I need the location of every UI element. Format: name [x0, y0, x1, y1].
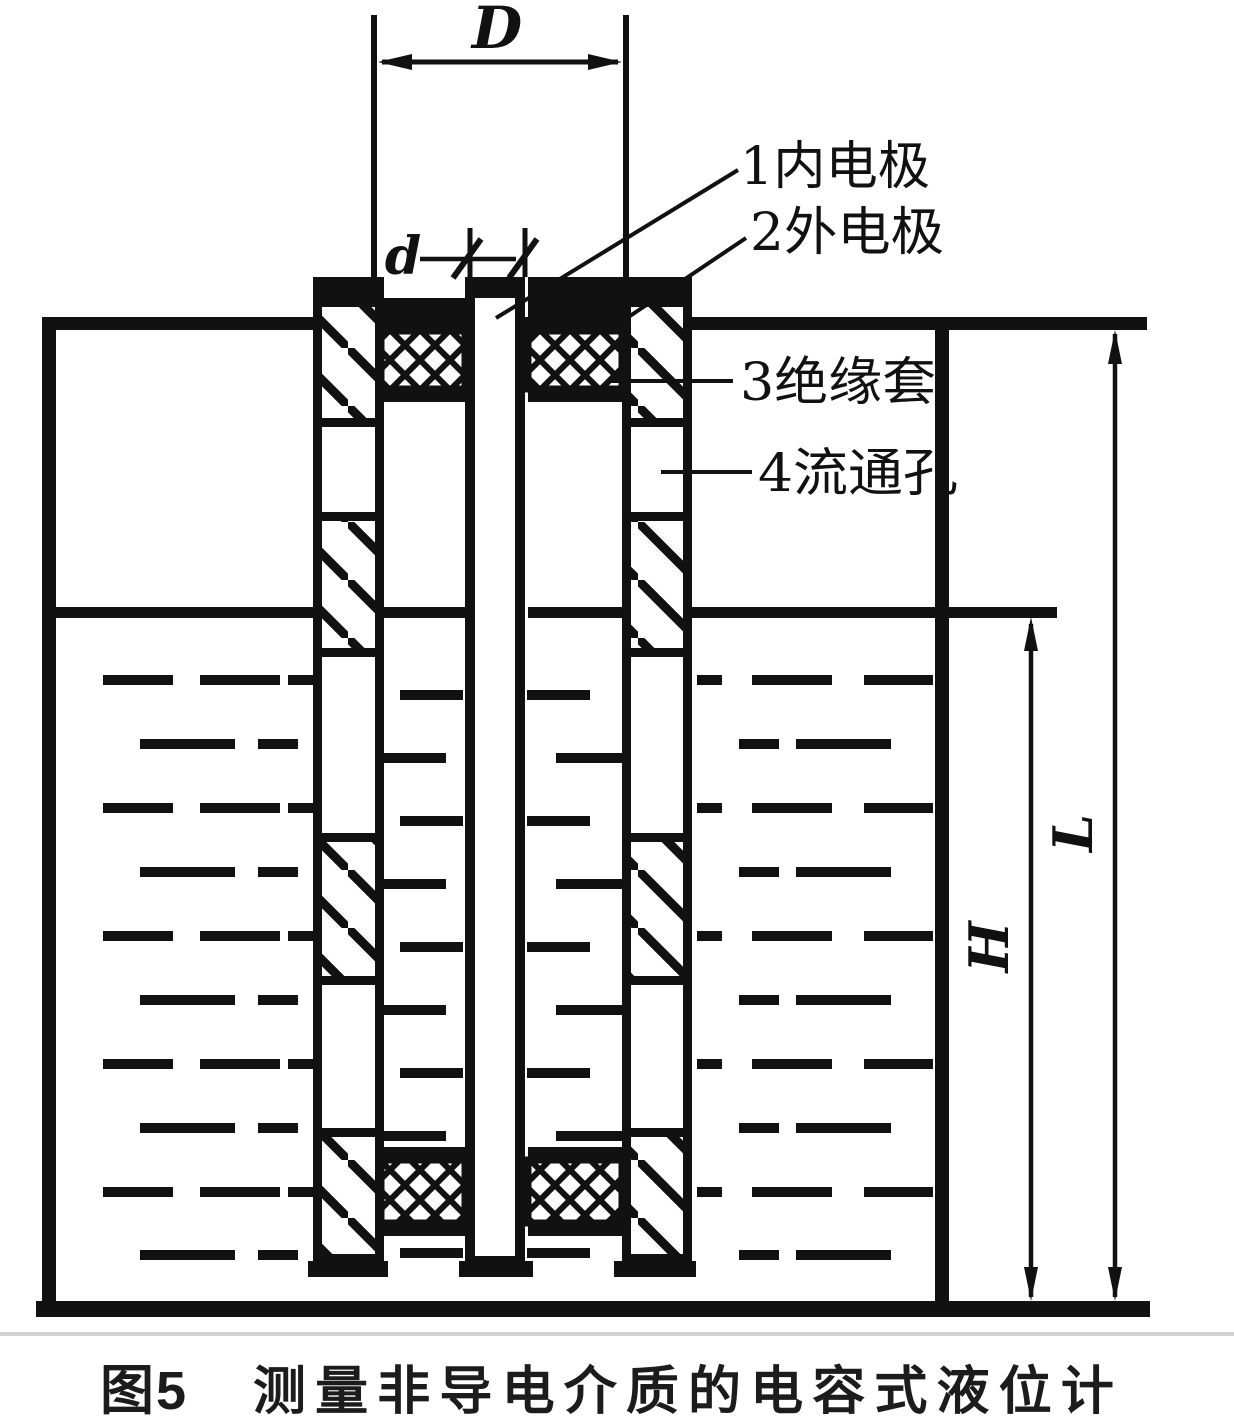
scan-artifact-line: [0, 1332, 1234, 1336]
liquid-dash: [400, 942, 463, 952]
dimension-label-D: D: [470, 0, 522, 62]
liquid-surface-right: [690, 607, 1057, 618]
insulator-bar: [528, 318, 622, 331]
liquid-dash: [864, 1187, 933, 1197]
part-label-flow-hole: 4流通孔: [661, 444, 958, 504]
inner-electrode-top-cap: [465, 277, 525, 298]
liquid-dash: [697, 1187, 722, 1197]
liquid-dash: [697, 931, 722, 941]
liquid-dash: [103, 931, 173, 941]
liquid-dash: [739, 1123, 779, 1133]
liquid-dash: [752, 1059, 832, 1069]
liquid-dash: [103, 803, 173, 813]
liquid-dash: [258, 867, 298, 877]
liquid-dash: [739, 739, 779, 749]
liquid-dash: [739, 867, 779, 877]
liquid-dash: [697, 1059, 722, 1069]
liquid-dash: [527, 690, 590, 700]
liquid-dash: [739, 1250, 779, 1260]
liquid-dash: [864, 931, 933, 941]
tank-bottom-line: [36, 1301, 1150, 1317]
liquid-dash: [739, 995, 779, 1005]
liquid-dash: [556, 1005, 622, 1015]
outer-electrode-right-wall: [627, 282, 688, 1273]
liquid-dash: [697, 675, 722, 685]
dimension-label-L: L: [1041, 814, 1105, 854]
figure-container: D d H L 1内电极 2外电极 3绝缘套 4流通孔: [0, 0, 1234, 1422]
insulator-hatch: [528, 1160, 622, 1223]
liquid-dash: [796, 1123, 891, 1133]
liquid-dash: [556, 753, 622, 763]
liquid-dash: [864, 1059, 933, 1069]
outer-electrode-hatch-block: [318, 517, 380, 653]
liquid-dash: [864, 803, 933, 813]
outer-electrode-left-bottom-cap: [308, 1261, 388, 1277]
liquid-dash: [200, 931, 280, 941]
outer-electrode-hatch-block: [627, 838, 688, 981]
outer-electrode-left-top-cap: [313, 277, 384, 298]
liquid-dash: [752, 675, 832, 685]
liquid-dash: [556, 879, 622, 889]
liquid-dash: [697, 803, 722, 813]
figure-caption-prefix: 图5: [100, 1361, 188, 1421]
liquid-dash: [200, 1187, 280, 1197]
insulator-bar: [528, 1147, 622, 1160]
part-label-text: 2外电极: [750, 203, 944, 263]
outer-electrode-hatch-block: [627, 517, 688, 653]
liquid-dash: [796, 995, 891, 1005]
liquid-dash: [400, 816, 463, 826]
part-label-text: 4流通孔: [758, 444, 958, 504]
liquid-dash: [796, 739, 891, 749]
liquid-dash: [258, 1250, 298, 1260]
part-label-text: 1内电极: [740, 137, 930, 197]
dimension-H: H: [957, 617, 1038, 1301]
liquid-dash: [258, 1123, 298, 1133]
liquid-dash: [103, 675, 173, 685]
liquid-dash: [752, 1187, 832, 1197]
liquid-dash: [140, 995, 235, 1005]
liquid-dash: [288, 675, 313, 685]
inner-electrode-rod: [470, 282, 520, 1261]
arrowhead-down: [1024, 1267, 1038, 1301]
dimension-label-H: H: [957, 920, 1021, 975]
inner-electrode-bottom-cap: [459, 1261, 533, 1277]
liquid-dash: [752, 803, 832, 813]
liquid-dash: [288, 1059, 313, 1069]
annulus-top-bar-left: [381, 298, 465, 318]
insulator-bar: [528, 389, 622, 402]
liquid-dash: [384, 879, 446, 889]
insulator-hatch: [381, 1160, 465, 1223]
liquid-dash: [140, 1123, 235, 1133]
inner-electrode: [459, 228, 533, 1277]
liquid-dash: [384, 753, 446, 763]
liquid-dash: [527, 816, 590, 826]
dimension-label-d: d: [385, 226, 421, 287]
liquid-dash: [200, 1059, 280, 1069]
liquid-dash: [384, 1131, 446, 1141]
liquid-dash: [288, 803, 313, 813]
outer-electrode-left-wall: [318, 282, 380, 1273]
liquid-dash: [384, 1005, 446, 1015]
outer-electrode-right-bottom-cap: [614, 1261, 696, 1277]
liquid-dash: [400, 690, 463, 700]
insulator-bar: [381, 1147, 465, 1160]
liquid-dash: [103, 1059, 173, 1069]
liquid-dash: [796, 1250, 891, 1260]
figure-caption-title: 测量非导电介质的电容式液位计: [253, 1363, 1123, 1421]
liquid-dash: [752, 931, 832, 941]
insulator-bar: [381, 389, 465, 402]
capacitive-level-gauge-diagram: D d H L 1内电极 2外电极 3绝缘套 4流通孔: [0, 0, 1234, 1422]
annulus-top-block-right: [528, 277, 622, 318]
outer-electrode-hatch-block: [318, 1133, 380, 1259]
arrowhead-right: [588, 54, 622, 70]
outer-electrode-hatch-block: [627, 303, 688, 423]
liquid-dash: [556, 1131, 622, 1141]
dimension-L: L: [1041, 330, 1122, 1301]
liquid-surface-annulus-right: [528, 607, 622, 618]
outer-electrode-hatch-block: [318, 303, 380, 423]
liquid-dash: [400, 1068, 463, 1078]
outer-electrode-hatch-block: [627, 1133, 688, 1259]
arrowhead-left: [378, 54, 412, 70]
liquid-dash: [527, 942, 590, 952]
liquid-dash: [140, 739, 235, 749]
liquid-dash: [288, 931, 313, 941]
liquid-surface-annulus-left: [381, 607, 465, 618]
part-label-text: 3绝缘套: [740, 353, 936, 413]
liquid-dash: [200, 803, 280, 813]
insulator-bar: [528, 1223, 622, 1236]
liquid-dash: [527, 1248, 590, 1258]
insulator-hatch: [528, 331, 622, 389]
liquid-dash: [864, 675, 933, 685]
liquid-dash: [796, 867, 891, 877]
arrowhead-up: [1024, 617, 1038, 651]
liquid-dash: [103, 1187, 173, 1197]
liquid-dash: [527, 1068, 590, 1078]
liquid-dash: [258, 739, 298, 749]
liquid-dash: [200, 675, 280, 685]
liquid-dash: [140, 1250, 235, 1260]
arrowhead-up: [1108, 330, 1122, 364]
outer-electrode-hatch-block: [318, 838, 380, 981]
insulator-hatch: [381, 331, 465, 389]
tank-left-wall: [42, 317, 56, 1317]
insulator-bar: [381, 318, 465, 331]
liquid-dash: [258, 995, 298, 1005]
liquid-dash: [288, 1187, 313, 1197]
liquid-surface-left: [56, 607, 317, 618]
liquid-dash: [140, 867, 235, 877]
liquid-dash: [400, 1248, 463, 1258]
arrowhead-down: [1108, 1267, 1122, 1301]
insulator-bar: [381, 1223, 465, 1236]
figure-caption: 图5 测量非导电介质的电容式液位计: [100, 1361, 1123, 1421]
liquid-surface-line: [56, 607, 1057, 618]
